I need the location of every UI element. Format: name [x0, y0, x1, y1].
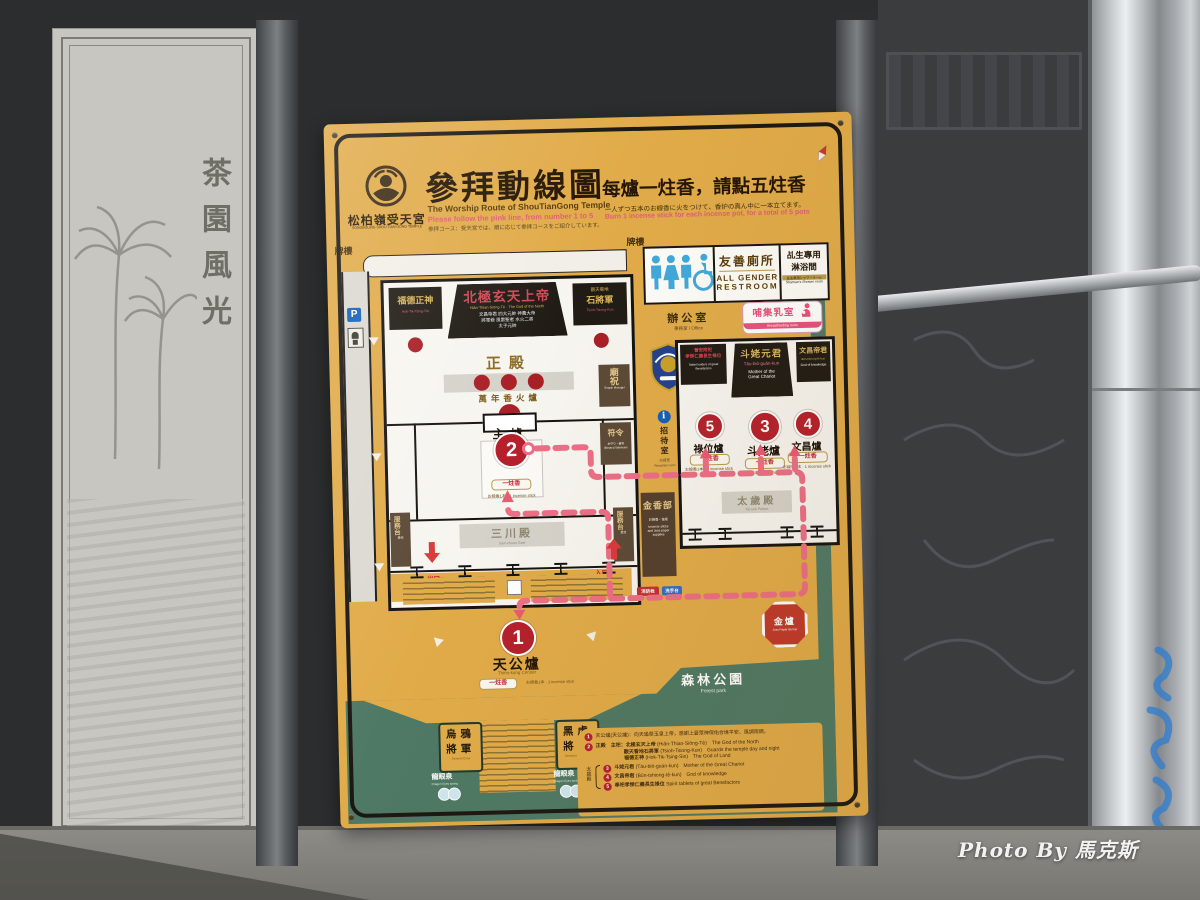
legend-2c2: (Hok-Tik-Tsing-Sin) The God of Land	[645, 753, 730, 761]
parking-sign: P	[347, 308, 361, 322]
office-label: 辦公室 事務室 / Office	[648, 309, 729, 333]
legend-text-1: 天公爐(天公爐)：向天遙祭玉皇上帝，感謝上蒼眾神保佑合境平安、風調雨順。	[595, 729, 768, 740]
right-wall	[878, 0, 1090, 840]
photo-watermark: Photo By 馬克斯	[958, 834, 1138, 863]
main-hall-building: 福德正神 Hok-Tik-Tsing-Sin 北極玄天上帝 Hiân-Thian…	[380, 274, 641, 611]
legend-num-3: 3	[603, 764, 611, 772]
incense-pot-dot	[528, 373, 544, 389]
door-icon	[688, 528, 701, 540]
tablet-en: Tablet holders of great Benefactors	[680, 362, 726, 371]
deity-box-left: 福德正神 Hok-Tik-Tsing-Sin	[388, 287, 442, 330]
stairs-right	[531, 573, 624, 601]
legend-group-label: 太歲殿	[585, 766, 592, 781]
restroom-zh: 友善廁所	[719, 252, 775, 272]
wenchang-en: God of knowledge	[796, 362, 830, 367]
burner-label: 金爐	[762, 614, 808, 628]
wall-decor-band	[886, 52, 1082, 130]
worship-route-sign: 松柏嶺受天宮 SONGBOLING SHOU TIAN GONG TEMPLE …	[323, 112, 868, 829]
incense-pot-dot	[474, 375, 490, 391]
restroom-icons-cell	[645, 247, 714, 303]
stone-panel-title: 茶園風光	[191, 157, 235, 341]
censer-2-note: お線香1本 · 1 incense stick	[452, 492, 572, 501]
crow-name2: 將軍	[441, 741, 481, 757]
shower-zh1: 乩生專用	[781, 248, 827, 261]
door-icon	[780, 526, 793, 538]
road-arrow-icon	[374, 563, 384, 571]
legend-num-2: 2	[585, 743, 593, 751]
incense-pot-dot	[501, 374, 517, 390]
legend-5: 奉祀孝悌仁義長生祿位	[615, 781, 665, 788]
restroom-figures-icon	[647, 249, 714, 301]
crow-name1: 烏鴉	[440, 726, 480, 742]
stone-relief-panel: 茶園風光	[52, 28, 260, 836]
deity-right-rom: Tsioh-Tsiong-Kun	[573, 307, 627, 312]
reception-en: Reception room	[648, 463, 682, 468]
temple-keeper-en: Temple Manager	[599, 385, 630, 390]
legend-5b: Spirit tablets of great Benefactors	[666, 779, 740, 787]
office-zh: 辦公室	[648, 309, 728, 327]
incense-pot-dot	[594, 333, 609, 348]
hall-lower-wall	[389, 514, 636, 522]
wenchang-rom: Bûn-tshiong-tè-kun	[796, 356, 830, 361]
censer-5-stick: 一炷香	[690, 454, 730, 466]
taisui-building: 晉安附祀 孝悌仁義長生祿位 Tablet holders of great Be…	[675, 336, 840, 549]
burner-en: Joss Paper Burner	[762, 627, 808, 632]
shower-zh2: 淋浴間	[781, 260, 827, 273]
incense-rule: 每爐一炷香，請點五炷香	[602, 171, 806, 202]
main-hall-label: 正殿	[385, 349, 632, 376]
temple-seal-icon	[364, 165, 407, 208]
door-icon	[554, 563, 567, 575]
washbasin-badge: 洗手台	[662, 586, 682, 595]
censer-4-note: お線香1本 · 1 incense stick	[779, 463, 835, 470]
censer-5-note: お線香1本 · 1 incense stick	[681, 466, 737, 473]
censer-5-number: 5	[696, 412, 725, 441]
wenchang-header-box: 文昌帝君 Bûn-tshiong-tè-kun God of knowledge	[796, 341, 831, 382]
door-icon	[506, 564, 519, 576]
legend-4: 文昌帝君	[614, 773, 634, 779]
wenchang-name: 文昌帝君	[796, 345, 830, 356]
forest-park-label: 森林公園 Forest park	[661, 668, 766, 696]
legend-4b: (Bûn-tshiong-tè-kun) God of knowledge	[636, 770, 727, 778]
taisui-en: Tai-suè Palace	[722, 506, 792, 512]
tiangong-stick: 一炷香	[479, 678, 517, 690]
restroom-label-cell: 友善廁所 ALL GENDER RESTROOM	[715, 245, 780, 301]
incense-shop-box: 金香部 お線香・金紙 Incense sticks and Joss paper…	[641, 492, 677, 577]
doumu-name: 斗姥元君	[730, 345, 792, 361]
taisui-label: 太歲殿	[722, 491, 792, 508]
service-desk-right: 服務台 受付	[613, 507, 634, 561]
restroom-box: 友善廁所 ALL GENDER RESTROOM 乩生專用 淋浴間 乩生専用シャ…	[643, 242, 830, 305]
reception-area: i 招待室 応接室 Reception room	[647, 410, 682, 468]
nursing-en: Breastfeeding room	[743, 321, 821, 329]
stone-etching-palms-icon	[67, 159, 197, 489]
door-icon	[718, 528, 731, 540]
photograph: 茶園風光	[0, 0, 1200, 900]
stone-etching-fields	[67, 499, 245, 839]
legend-num-4: 4	[603, 773, 611, 781]
nursing-zh: 哺集乳室	[752, 307, 794, 319]
road-arrow-icon	[372, 453, 382, 461]
doumu-header-box: 斗姥元君 Táu-bió-guán-kun Mother of the Grea…	[730, 342, 793, 397]
shower-cell: 乩生專用 淋浴間 乩生専用シャワールーム Shaman's Shower roo…	[781, 244, 828, 299]
censer-4-stick: 一炷香	[788, 451, 828, 463]
censer-3-number: 3	[749, 410, 782, 443]
door-icon	[458, 565, 471, 577]
legend-3b: (Táu-bió-guán-kun) Mother of the Great C…	[636, 761, 745, 770]
park-zh: 森林公園	[661, 668, 765, 690]
legend-group: 太歲殿 3 斗姥元君 (Táu-bió-guán-kun) Mother of …	[585, 759, 820, 791]
censer-4-number: 4	[794, 409, 823, 438]
legend-3: 斗姥元君	[614, 764, 634, 770]
shop-en3: supplies	[642, 532, 676, 537]
shower-en: Shaman's Shower room	[781, 279, 827, 284]
sanchuan-gate-box: 三川殿 Sam-chuan Gate	[459, 522, 565, 549]
nursing-mother-icon	[799, 303, 812, 318]
main-deity-name: 北極玄天上帝	[446, 284, 566, 307]
censer-2-stick: 一炷香	[491, 479, 531, 491]
altar-bar	[444, 372, 574, 393]
legend-group-brace	[595, 764, 601, 788]
incense-pot-dot	[408, 337, 423, 352]
deity-left-rom: Hok-Tik-Tsing-Sin	[389, 309, 442, 314]
legend-2c: 福德正神	[624, 755, 644, 761]
deity-left-name: 福德正神	[389, 293, 442, 307]
doumu-rom: Táu-bió-guán-kun	[730, 360, 792, 367]
shop-label: 金香部	[641, 498, 675, 512]
temple-keeper-box: 廟祝 Temple Manager	[598, 364, 630, 407]
nursing-room-badge: 哺集乳室 Breastfeeding room	[742, 300, 823, 334]
gate-label-left: 牌樓	[334, 244, 352, 257]
talisman-en: Blessed Talismans	[600, 445, 631, 450]
wall-carving-pattern	[884, 300, 1084, 820]
temple-keeper-label: 廟祝	[608, 367, 621, 385]
legend-panel: 1 天公爐(天公爐)：向天遙祭玉皇上帝，感謝上蒼眾神保佑合境平安、風調雨順。 2…	[576, 723, 824, 817]
road-arrow-icon	[369, 337, 379, 345]
service-left-label: 服務台	[390, 516, 400, 536]
stairs-left	[403, 577, 496, 605]
taisui-hall-box: 太歲殿 Tai-suè Palace	[722, 490, 793, 514]
deity-box-right: 觀天看地 石將軍 Tsioh-Tsiong-Kun	[572, 282, 627, 325]
restroom-en2: RESTROOM	[715, 281, 779, 292]
sign-post-left	[256, 14, 298, 866]
legend-num-5: 5	[604, 782, 612, 790]
reception-label: 招待室	[658, 426, 670, 456]
hydrant-badge: 消防栓	[637, 586, 659, 596]
deity-right-name2: 石將軍	[573, 292, 627, 306]
general-crow-box: 烏鴉 將軍 General Crow	[438, 722, 483, 773]
shop-jp: お線香・金紙	[641, 516, 675, 522]
tablet-line2: 孝悌仁義長生祿位	[680, 353, 726, 360]
service-right-label: 服務台	[613, 510, 623, 530]
stairs-center-post	[507, 580, 522, 595]
legend-num-1: 1	[584, 733, 592, 741]
steel-pillar	[1088, 0, 1200, 900]
map-kiosk-icon	[347, 328, 363, 348]
spring-left: 龍眼泉 Dragon Eyes spring	[431, 771, 487, 786]
service-desk-left: 服務台 受付	[390, 513, 411, 567]
door-icon	[810, 525, 823, 537]
info-icon: i	[657, 410, 670, 423]
south-stairs	[478, 719, 556, 793]
pillar-seam	[1092, 388, 1200, 391]
deity-box-center: 北極玄天上帝 Hiân-Thian-Siōng-Tè · The God of …	[446, 282, 567, 339]
doumu-en2: Great Chariot	[731, 373, 793, 380]
tablet-header-box: 晉安附祀 孝悌仁義長生祿位 Tablet holders of great Be…	[680, 344, 727, 385]
